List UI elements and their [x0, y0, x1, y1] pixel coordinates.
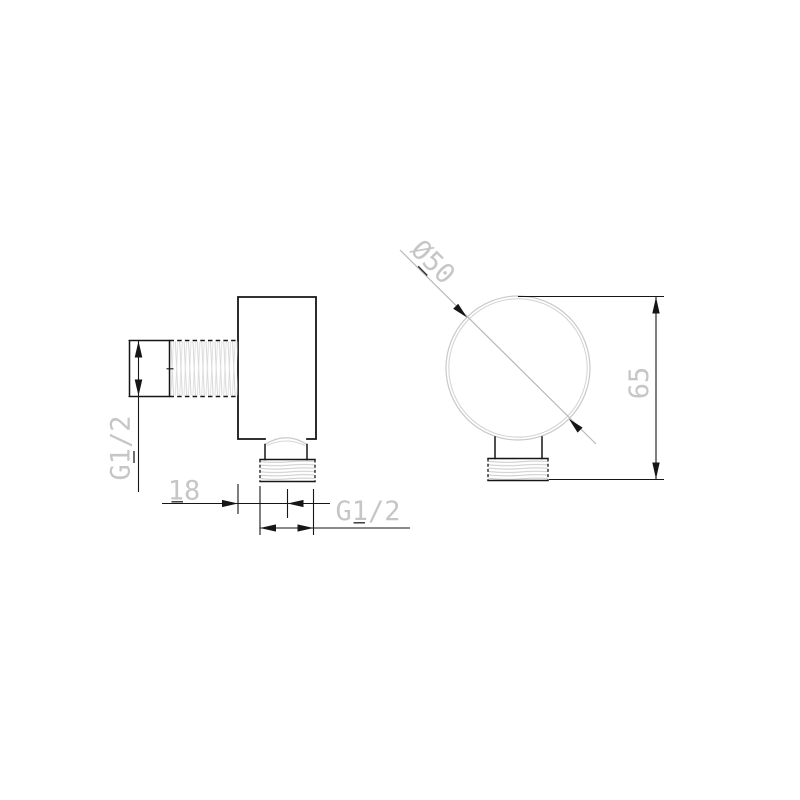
- inlet-thread-label: G1/2: [106, 415, 137, 480]
- dim-arrow-right-icon: [298, 524, 314, 531]
- side-body-outline: [238, 297, 316, 439]
- front-outlet-thread-fill: [489, 459, 548, 480]
- dim-arrow-left-icon: [260, 524, 276, 531]
- side-inlet-thread-hatch: [170, 342, 238, 396]
- front-view: [446, 296, 590, 481]
- dim-arrow-down-icon: [652, 463, 659, 480]
- dim-arrow-left-icon: [288, 500, 304, 507]
- outlet-thread-label: G1/2: [335, 496, 400, 527]
- diameter-label: Ø50: [404, 234, 460, 290]
- side-inlet-cap: [130, 341, 170, 397]
- dim-arrow-up-icon: [652, 297, 659, 314]
- dim-diameter: Ø50: [400, 234, 596, 444]
- drawing-page: G1/2 18 G1/2 Ø50 65: [0, 0, 800, 800]
- dim-height-label-group: 65: [624, 367, 655, 400]
- side-outlet-thread-fill: [261, 460, 315, 481]
- dim-arrow-up-icon: [135, 341, 143, 358]
- dim-arrow-downright-icon: [453, 304, 467, 318]
- side-outlet-neck: [265, 445, 307, 460]
- dim-inlet-thread: G1/2: [106, 341, 171, 493]
- dim-inlet-ext-lines: [129, 341, 171, 397]
- dim-arrow-upleft-icon: [569, 419, 583, 433]
- dim-offset-ext-lines: [238, 484, 288, 518]
- dim-diameter-label-group: Ø50: [404, 234, 460, 290]
- side-outlet-seat-arc-inner: [267, 441, 305, 446]
- height-label: 65: [624, 367, 655, 400]
- dim-inlet-label-group: G1/2: [106, 415, 137, 480]
- dim-arrow-down-icon: [135, 380, 143, 397]
- technical-drawing-canvas: G1/2 18 G1/2 Ø50 65: [0, 0, 800, 800]
- side-view: [130, 297, 317, 482]
- dim-arrow-right-icon: [222, 500, 238, 507]
- dim-outlet-thread: G1/2: [260, 486, 410, 535]
